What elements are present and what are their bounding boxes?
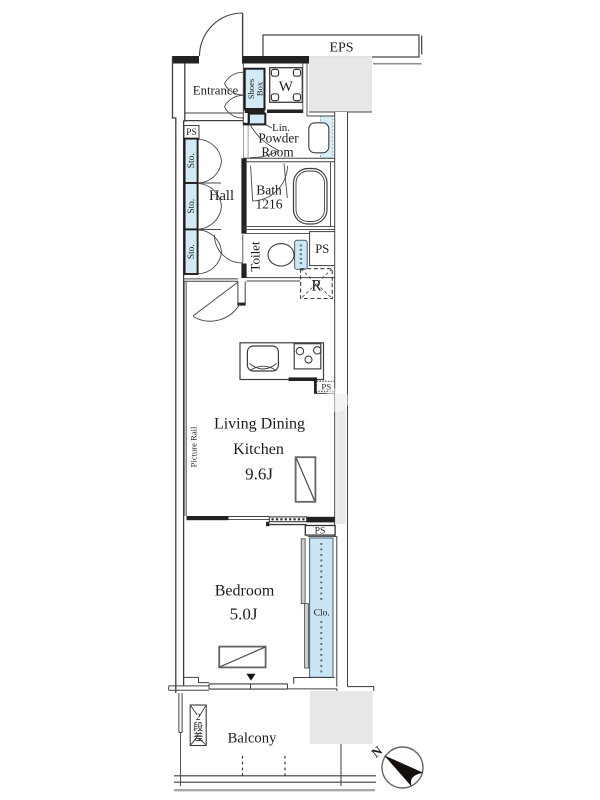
svg-text:Picture Rail: Picture Rail xyxy=(189,426,199,467)
svg-text:Sto.: Sto. xyxy=(187,199,197,214)
svg-text:差: 差 xyxy=(193,731,203,744)
svg-text:1216: 1216 xyxy=(256,197,283,212)
svg-text:EPS: EPS xyxy=(329,41,353,56)
svg-text:Clo.: Clo. xyxy=(314,608,330,619)
svg-text:Box: Box xyxy=(255,81,265,96)
svg-text:PS: PS xyxy=(315,242,329,256)
svg-text:Room: Room xyxy=(261,145,294,160)
svg-text:PS: PS xyxy=(321,382,331,392)
svg-text:Bath: Bath xyxy=(256,183,282,198)
svg-text:Sto.: Sto. xyxy=(187,153,197,168)
svg-text:Entrance: Entrance xyxy=(193,84,239,98)
svg-text:W: W xyxy=(279,79,294,95)
svg-text:5.0J: 5.0J xyxy=(230,605,258,624)
svg-text:PS: PS xyxy=(315,526,326,537)
svg-text:Toilet: Toilet xyxy=(248,241,263,272)
svg-text:Powder: Powder xyxy=(258,131,299,146)
svg-text:R: R xyxy=(311,278,322,295)
svg-text:Kitchen: Kitchen xyxy=(233,441,284,458)
svg-text:Hall: Hall xyxy=(209,188,234,204)
svg-text:Balcony: Balcony xyxy=(228,731,277,747)
svg-text:2: 2 xyxy=(196,713,201,723)
svg-text:9.6J: 9.6J xyxy=(245,465,273,484)
svg-text:Bedroom: Bedroom xyxy=(215,583,275,600)
svg-text:Sto.: Sto. xyxy=(187,244,197,259)
svg-text:PS: PS xyxy=(186,127,197,138)
svg-text:Living Dining: Living Dining xyxy=(214,416,305,433)
